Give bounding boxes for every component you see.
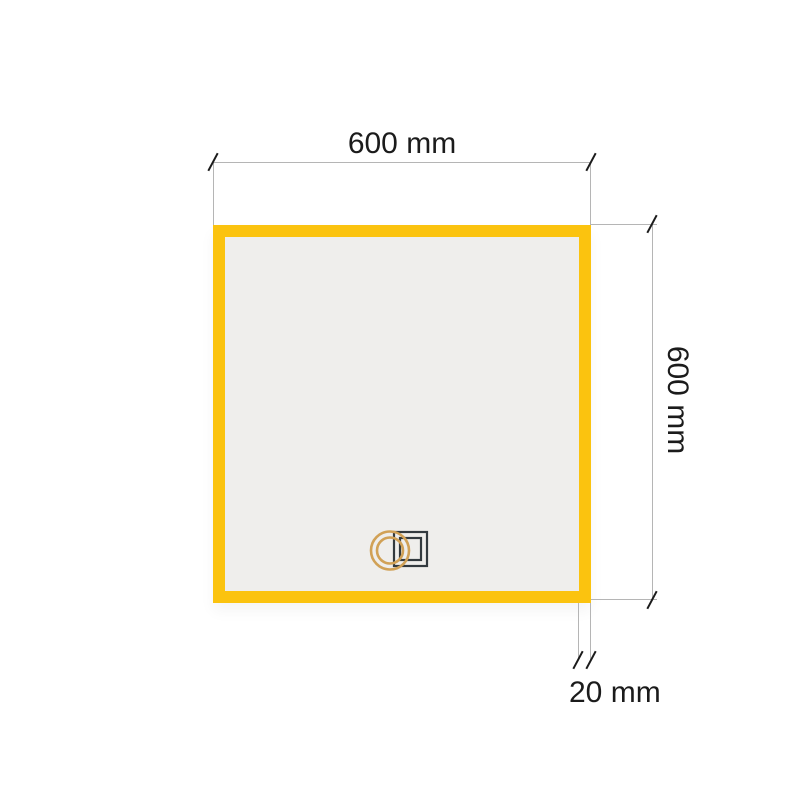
width-dimension-line — [213, 162, 591, 163]
dimension-tick — [585, 651, 596, 670]
brand-logo — [368, 526, 432, 578]
height-dimension-line — [652, 224, 653, 600]
height-extension-line-bottom — [591, 599, 657, 600]
product-dimension-diagram: 600 mm 600 mm 20 mm — [0, 0, 800, 800]
height-extension-line-top — [591, 224, 657, 225]
frame-thickness-dimension-label: 20 mm — [569, 678, 661, 708]
thickness-extension-line-outer — [590, 603, 591, 660]
width-extension-line-left — [213, 162, 214, 225]
width-dimension-label: 600 mm — [348, 129, 456, 159]
thickness-extension-line-inner — [578, 603, 579, 660]
logo-ring-icon — [371, 532, 409, 570]
width-extension-line-right — [590, 162, 591, 225]
height-dimension-label: 600 mm — [662, 346, 692, 454]
